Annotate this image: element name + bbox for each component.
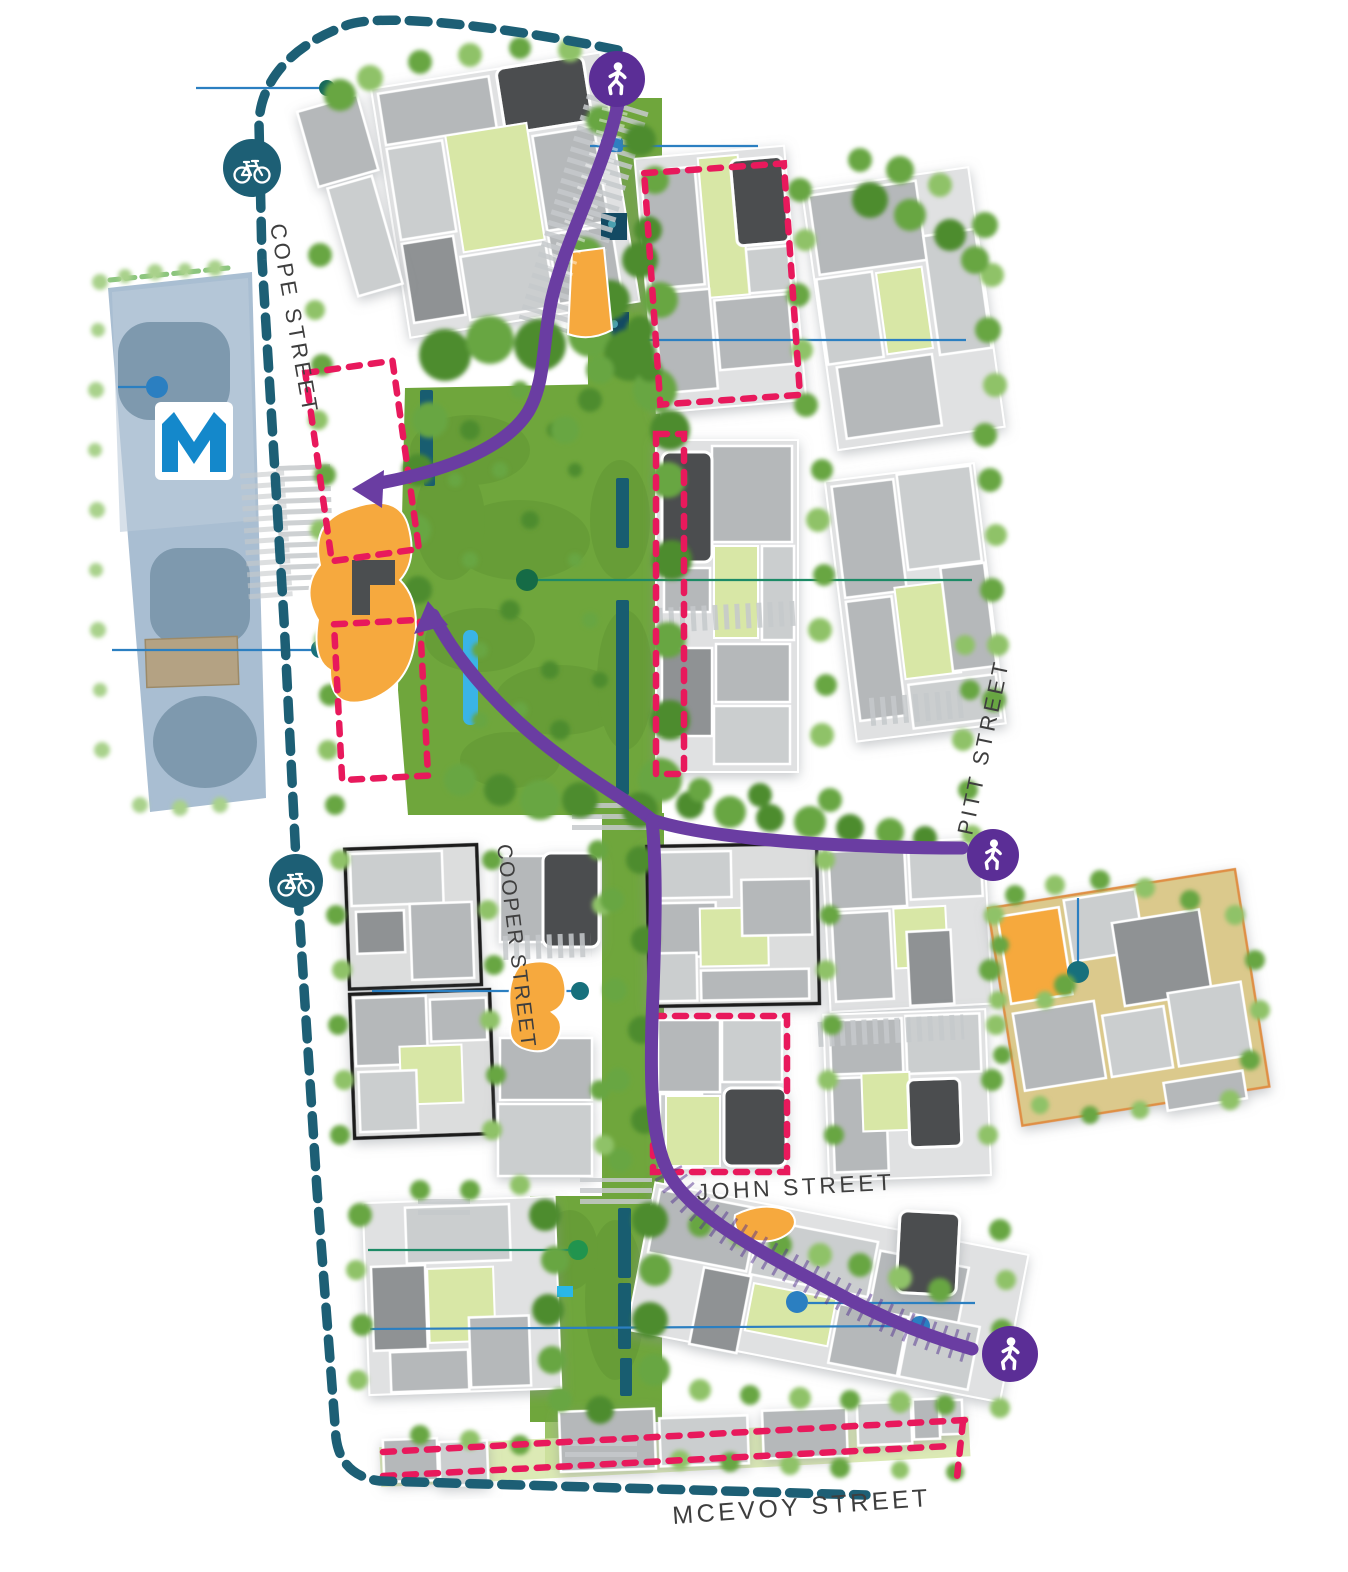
tree	[813, 564, 835, 586]
tree	[991, 936, 1009, 954]
tree	[1240, 1050, 1260, 1070]
tree	[588, 840, 608, 860]
tree	[568, 463, 582, 477]
tree	[840, 1390, 860, 1410]
tree	[326, 905, 346, 925]
tree	[836, 814, 864, 842]
tree	[460, 420, 480, 440]
city-block	[363, 1196, 562, 1395]
building	[402, 236, 466, 323]
building	[722, 1020, 782, 1082]
tree	[550, 720, 570, 740]
tree	[88, 382, 104, 398]
tree	[894, 199, 926, 231]
tree	[147, 264, 163, 280]
tree	[348, 1370, 368, 1390]
tree	[960, 680, 980, 700]
tree	[1180, 890, 1200, 910]
tree	[486, 1065, 506, 1085]
tree	[478, 900, 498, 920]
tree	[1054, 974, 1076, 996]
tree	[815, 850, 835, 870]
tree	[412, 402, 448, 438]
tree	[1220, 1090, 1240, 1110]
park-path-bar	[616, 478, 629, 548]
city-block	[822, 838, 992, 1012]
building	[356, 910, 405, 954]
tree	[448, 473, 462, 487]
tree	[824, 1125, 844, 1145]
tree	[482, 1120, 502, 1140]
tree	[808, 1243, 832, 1267]
tree	[639, 1254, 671, 1286]
tree	[1036, 991, 1054, 1009]
tree	[928, 1278, 952, 1302]
metro-building	[150, 548, 250, 644]
tree	[91, 323, 105, 337]
building	[861, 1072, 911, 1132]
tree	[328, 1015, 348, 1035]
tree	[928, 173, 952, 197]
tree	[626, 316, 654, 344]
tree	[794, 806, 826, 838]
tree	[993, 1046, 1011, 1064]
tree	[789, 1387, 811, 1409]
tree	[1081, 1106, 1099, 1124]
tree	[714, 796, 746, 828]
tree	[212, 797, 228, 813]
building	[907, 930, 955, 1006]
park-path-bar	[616, 713, 629, 795]
tree	[989, 991, 1007, 1009]
tree	[207, 260, 223, 276]
building	[410, 902, 475, 980]
tree	[818, 788, 842, 812]
tree	[562, 782, 598, 818]
tree	[510, 1175, 530, 1195]
tree	[594, 1135, 614, 1155]
tree	[520, 780, 560, 820]
tree	[1090, 870, 1110, 890]
tree	[330, 850, 350, 870]
tree	[996, 1270, 1016, 1290]
tree	[808, 618, 832, 642]
tree	[688, 778, 712, 802]
tree	[788, 178, 812, 202]
building	[897, 466, 982, 570]
tree	[351, 1314, 373, 1336]
building	[816, 272, 883, 365]
tree	[88, 443, 102, 457]
tree	[606, 1068, 630, 1092]
building	[716, 644, 790, 702]
tree	[810, 723, 834, 747]
building	[714, 706, 790, 764]
tree	[480, 1010, 500, 1030]
tree	[472, 712, 488, 728]
tree	[92, 274, 108, 290]
tree	[492, 462, 508, 478]
bicycle-icon	[223, 139, 281, 197]
building	[828, 848, 907, 910]
tree	[582, 612, 598, 628]
tree	[642, 282, 678, 318]
metro-station-site	[108, 268, 266, 812]
tree	[541, 1246, 569, 1274]
tree	[889, 1391, 911, 1413]
building	[908, 1078, 962, 1148]
tree	[178, 263, 192, 277]
tree	[638, 1354, 670, 1386]
tree	[632, 1302, 668, 1338]
map-canvas: COPE STREET PITT STREET COOPER STREET JO…	[0, 0, 1348, 1572]
tree	[822, 1015, 842, 1035]
building	[653, 851, 732, 898]
tree	[794, 229, 816, 251]
tree	[984, 905, 1004, 925]
building	[1102, 1006, 1173, 1077]
tree	[118, 269, 132, 283]
metro-building	[153, 696, 257, 788]
tree	[90, 622, 106, 638]
city-block	[658, 1020, 786, 1168]
tree	[1225, 905, 1245, 925]
tree	[978, 468, 1002, 492]
building	[390, 1350, 469, 1393]
pedestrian-icon	[982, 1326, 1038, 1382]
tree	[324, 79, 356, 111]
tree	[624, 124, 656, 156]
tree	[548, 1388, 572, 1412]
tree	[848, 1253, 872, 1277]
tree	[1045, 875, 1065, 895]
building	[358, 1070, 418, 1132]
building	[498, 1104, 592, 1176]
building	[831, 911, 894, 1002]
building	[1167, 982, 1252, 1067]
tree	[472, 642, 488, 658]
tree	[1245, 950, 1265, 970]
tree	[484, 955, 504, 975]
building	[666, 1096, 720, 1166]
tree	[955, 635, 975, 655]
tree	[806, 508, 830, 532]
tree	[975, 317, 1001, 343]
tree	[852, 182, 888, 218]
building	[655, 953, 698, 1002]
tree	[820, 905, 840, 925]
building	[714, 294, 794, 370]
tree	[462, 552, 478, 568]
tree	[818, 1070, 838, 1090]
park-path-bar	[616, 600, 629, 730]
tree	[521, 511, 539, 529]
tree	[458, 43, 482, 67]
tree	[592, 672, 608, 688]
tree	[689, 1379, 711, 1401]
tree	[410, 1425, 430, 1445]
city-block	[345, 845, 482, 990]
tree	[891, 1461, 909, 1479]
tree	[935, 1395, 955, 1415]
park-path-bar	[618, 1283, 631, 1349]
tree	[460, 1180, 480, 1200]
tree	[500, 600, 520, 620]
tree	[132, 797, 148, 813]
tree	[408, 50, 432, 74]
building	[350, 851, 444, 906]
tree	[332, 960, 352, 980]
building	[658, 1020, 720, 1092]
tree	[532, 1294, 564, 1326]
building	[837, 354, 942, 439]
masterplan-map: COPE STREET PITT STREET COOPER STREET JO…	[0, 0, 1348, 1572]
tree	[419, 329, 471, 381]
tree	[308, 243, 332, 267]
tree	[330, 1125, 350, 1145]
tree	[600, 888, 624, 912]
tree	[980, 578, 1004, 602]
building	[469, 1315, 531, 1387]
building	[445, 123, 544, 252]
tree	[990, 1398, 1010, 1418]
tree	[815, 674, 837, 696]
tree	[509, 37, 531, 59]
tree	[466, 316, 514, 364]
tree	[981, 1069, 1003, 1091]
tree	[934, 219, 966, 251]
tree	[538, 1346, 566, 1374]
tree	[172, 800, 188, 816]
building	[701, 969, 810, 1001]
tree	[986, 1015, 1006, 1035]
tree	[318, 740, 338, 760]
tree	[484, 774, 516, 806]
tree	[541, 661, 559, 679]
tree	[632, 1202, 668, 1238]
tree	[989, 1219, 1011, 1241]
tree	[740, 1385, 760, 1405]
tree	[888, 1266, 912, 1290]
building	[712, 446, 792, 542]
tree	[748, 783, 772, 807]
tree	[334, 1070, 354, 1090]
building	[741, 879, 812, 936]
building	[543, 853, 599, 947]
tree	[529, 1199, 561, 1231]
tree	[89, 502, 105, 518]
tree	[811, 459, 833, 481]
tree	[985, 524, 1007, 546]
building	[430, 998, 487, 1042]
building	[495, 55, 592, 134]
tree	[961, 246, 989, 274]
tree	[978, 1125, 998, 1145]
building	[724, 1088, 786, 1166]
tree	[551, 416, 579, 444]
tree	[444, 764, 476, 796]
tree	[93, 683, 107, 697]
tree	[987, 634, 1009, 656]
tree	[568, 553, 582, 567]
tree	[603, 978, 627, 1002]
tree	[816, 960, 836, 980]
tree	[983, 373, 1007, 397]
building	[746, 246, 792, 293]
tree	[325, 795, 345, 815]
tree	[886, 156, 914, 184]
bicycle-icon	[269, 854, 323, 908]
tree	[346, 1260, 366, 1280]
park-path-bar	[618, 1208, 631, 1278]
city-block	[350, 990, 495, 1139]
city-block	[647, 844, 820, 1007]
tree	[1135, 878, 1155, 898]
tree	[586, 1396, 614, 1424]
tree	[979, 959, 1001, 981]
tree	[848, 148, 872, 172]
metro-plaza	[145, 636, 239, 687]
tree	[305, 300, 325, 320]
tree	[357, 65, 383, 91]
tree	[94, 742, 110, 758]
building	[1013, 1001, 1106, 1091]
tree	[586, 356, 614, 384]
park-path-bar	[620, 1358, 632, 1396]
tree	[1250, 1000, 1270, 1020]
tree	[756, 804, 784, 832]
pedestrian-icon	[589, 51, 645, 107]
tree	[1131, 1101, 1149, 1119]
tree	[578, 388, 602, 412]
tree	[830, 1458, 850, 1478]
tree	[89, 563, 103, 577]
tree	[1005, 885, 1025, 905]
route-arrow	[352, 470, 384, 508]
tree	[511, 381, 529, 399]
tree	[973, 423, 997, 447]
tree	[410, 1180, 430, 1200]
tree	[348, 1203, 372, 1227]
tree	[608, 1148, 632, 1172]
tree	[972, 212, 998, 238]
tree	[1031, 1096, 1049, 1114]
building	[371, 1265, 428, 1351]
